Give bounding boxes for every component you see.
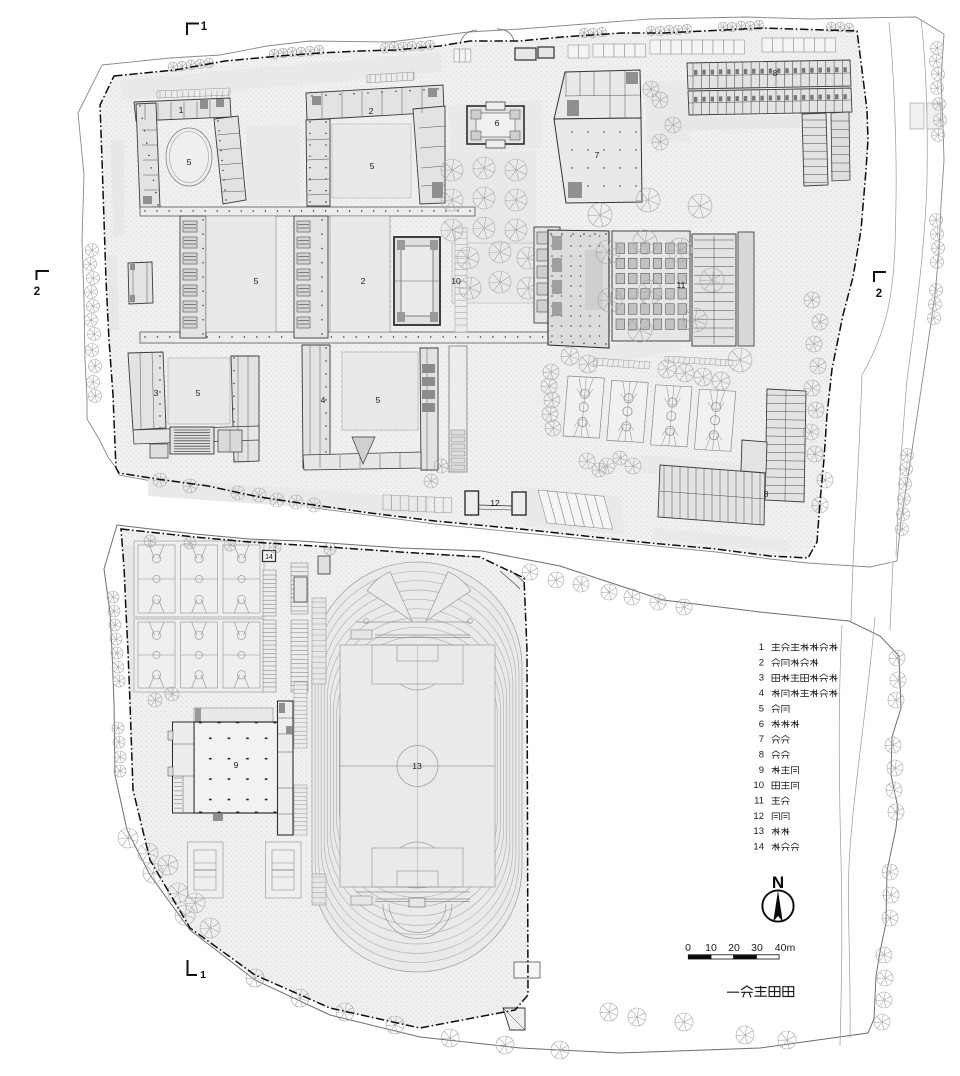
svg-text:14: 14: [265, 554, 273, 561]
svg-text:8: 8: [764, 489, 769, 499]
svg-text:2: 2: [361, 276, 366, 286]
svg-text:40m: 40m: [775, 942, 796, 954]
svg-text:7: 7: [595, 150, 600, 160]
svg-text:5: 5: [370, 161, 375, 171]
svg-text:13: 13: [412, 761, 422, 771]
svg-text:9: 9: [759, 765, 764, 776]
svg-text:6: 6: [495, 118, 500, 128]
svg-text:12: 12: [490, 498, 500, 508]
svg-text:6: 6: [759, 719, 764, 730]
svg-text:11: 11: [677, 280, 686, 290]
svg-text:2: 2: [759, 657, 764, 668]
svg-text:1: 1: [201, 21, 208, 33]
svg-text:1: 1: [200, 969, 206, 981]
svg-text:1: 1: [179, 105, 184, 115]
svg-text:5: 5: [196, 388, 201, 398]
svg-text:5: 5: [254, 276, 259, 286]
svg-text:5: 5: [759, 703, 764, 714]
svg-text:9: 9: [234, 760, 239, 770]
svg-text:10: 10: [451, 276, 461, 286]
svg-text:12: 12: [753, 811, 764, 822]
svg-text:5: 5: [376, 395, 381, 405]
svg-text:8: 8: [759, 749, 764, 760]
svg-text:1: 1: [759, 642, 764, 653]
svg-text:7: 7: [759, 734, 764, 745]
svg-text:11: 11: [754, 796, 764, 807]
svg-text:3: 3: [154, 388, 159, 398]
svg-text:8: 8: [773, 68, 778, 78]
svg-text:14: 14: [753, 842, 764, 853]
svg-text:20: 20: [728, 942, 740, 954]
svg-text:10: 10: [753, 780, 764, 791]
svg-text:3: 3: [759, 673, 764, 684]
svg-text:4: 4: [321, 395, 326, 405]
svg-text:5: 5: [187, 157, 192, 167]
svg-text:2: 2: [369, 106, 374, 116]
svg-text:30: 30: [751, 942, 763, 954]
svg-text:10: 10: [705, 942, 717, 954]
svg-text:N: N: [772, 873, 784, 892]
svg-text:2: 2: [34, 286, 40, 298]
svg-text:2: 2: [876, 288, 882, 300]
svg-text:4: 4: [759, 688, 764, 699]
svg-text:13: 13: [753, 826, 764, 837]
svg-text:0: 0: [685, 942, 691, 954]
